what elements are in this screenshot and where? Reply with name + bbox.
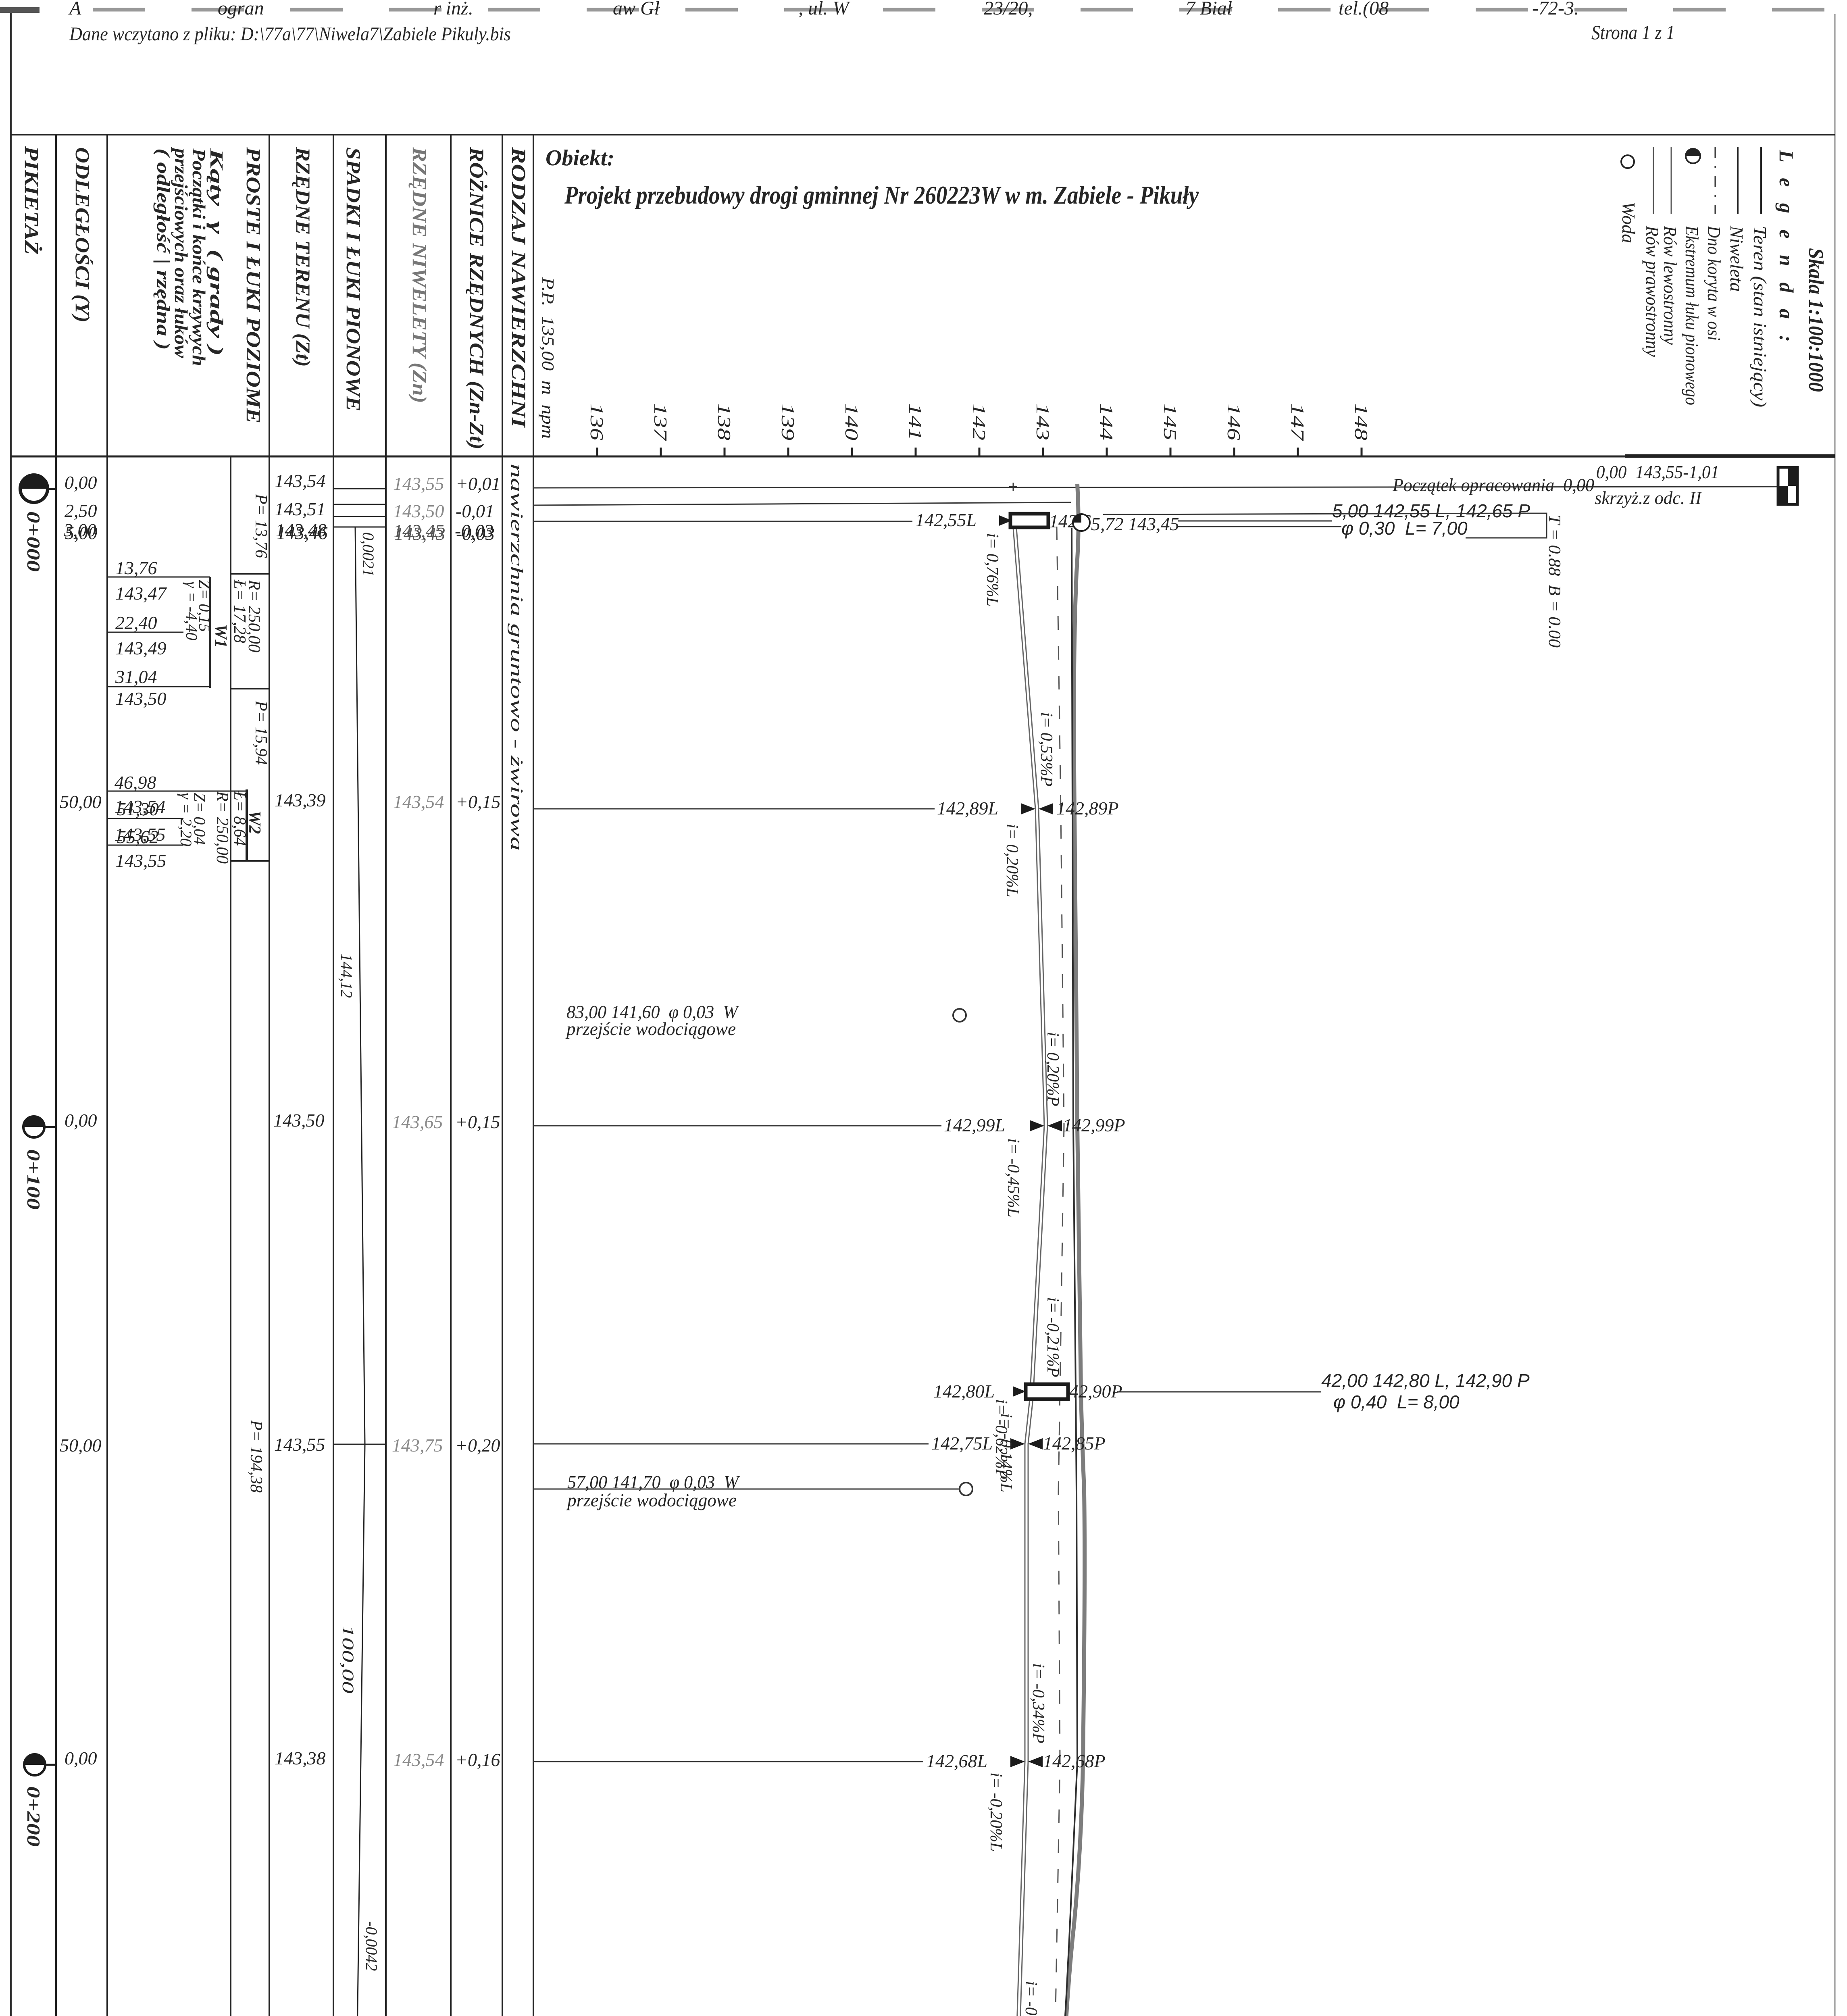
- svg-text:142,99P: 142,99P: [1063, 1115, 1125, 1135]
- svg-text:0,00: 0,00: [65, 1110, 97, 1131]
- svg-text:L e g e n d a :: L e g e n d a :: [1775, 150, 1798, 348]
- svg-text:-0,01: -0,01: [456, 501, 494, 521]
- svg-text:143,49: 143,49: [115, 638, 167, 658]
- svg-text:42,90P: 42,90P: [1069, 1381, 1122, 1402]
- svg-text:55,62: 55,62: [117, 827, 159, 847]
- svg-text:przejście wodociągowe: przejście wodociągowe: [565, 1018, 736, 1039]
- svg-text:i= 0,20%P: i= 0,20%P: [1043, 1032, 1062, 1106]
- svg-text:Woda: Woda: [1618, 202, 1639, 243]
- svg-text:+0,15: +0,15: [455, 1112, 500, 1132]
- svg-text:+0,16: +0,16: [455, 1749, 500, 1770]
- svg-text:Strona 1 z 1: Strona 1 z 1: [1591, 21, 1675, 44]
- svg-text:Dane wczytano z pliku: D:\77a\: Dane wczytano z pliku: D:\77a\77\Niwela7…: [69, 23, 511, 45]
- svg-text:W2: W2: [245, 810, 264, 834]
- svg-text:i= 0,53%P: i= 0,53%P: [1037, 712, 1056, 787]
- svg-text:100,00: 100,00: [339, 1625, 357, 1693]
- svg-text:przejście wodociągowe: przejście wodociągowe: [566, 1490, 737, 1510]
- svg-text:46,98: 46,98: [115, 772, 156, 793]
- svg-text:138: 138: [714, 403, 735, 440]
- svg-text:142,55L: 142,55L: [915, 510, 977, 530]
- svg-text:i= -0,14%L: i= -0,14%L: [997, 1413, 1015, 1492]
- svg-text:i= -0,21%P: i= -0,21%P: [1043, 1297, 1062, 1377]
- svg-text:142: 142: [969, 403, 989, 440]
- svg-text:143,38: 143,38: [275, 1748, 326, 1768]
- svg-text:145: 145: [1160, 403, 1181, 440]
- svg-text:, ul. W: , ul. W: [798, 0, 850, 19]
- svg-text:142,89P: 142,89P: [1056, 798, 1119, 818]
- svg-text:Projekt przebudowy drogi gminn: Projekt przebudowy drogi gminnej Nr 2602…: [564, 181, 1199, 209]
- svg-text:i= 0,20%L: i= 0,20%L: [1003, 824, 1021, 897]
- svg-text:i= 0,76%L: i= 0,76%L: [983, 533, 1002, 606]
- svg-text:R= 250,00: R= 250,00: [245, 579, 263, 652]
- svg-text:skrzyż.z odc. II: skrzyż.z odc. II: [1595, 487, 1703, 508]
- svg-text:5,72 143,45: 5,72 143,45: [1091, 514, 1179, 534]
- svg-text:R= 250,00: R= 250,00: [213, 791, 231, 864]
- svg-text:147: 147: [1287, 403, 1308, 442]
- svg-text:143,39: 143,39: [275, 790, 326, 810]
- svg-text:0+200: 0+200: [23, 1786, 44, 1847]
- svg-text:144: 144: [1096, 403, 1117, 440]
- svg-text:i= -0,34%P: i= -0,34%P: [1029, 1663, 1047, 1743]
- svg-text:RZĘDNE TERENU (Zt): RZĘDNE TERENU (Zt): [292, 147, 314, 367]
- svg-text:142,80L: 142,80L: [933, 1381, 995, 1402]
- svg-text:137: 137: [650, 403, 671, 442]
- svg-text:ODLEGŁOŚCI (Y): ODLEGŁOŚCI (Y): [71, 147, 94, 323]
- svg-text:2,50: 2,50: [65, 500, 97, 521]
- svg-text:( odległość | rzędna ): ( odległość | rzędna ): [153, 148, 174, 350]
- svg-text:Dno koryta w osi: Dno koryta w osi: [1704, 225, 1724, 341]
- svg-text:13,76: 13,76: [115, 558, 157, 578]
- svg-text:RÓŻNICE RZĘDNYCH (Zn-Zt): RÓŻNICE RZĘDNYCH (Zn-Zt): [466, 147, 488, 450]
- svg-text:139: 139: [778, 403, 798, 440]
- svg-text:r inż.: r inż.: [433, 0, 473, 19]
- svg-text:143,55: 143,55: [393, 473, 444, 494]
- svg-text:Rów prawostronny: Rów prawostronny: [1642, 225, 1663, 357]
- svg-text:7 Biał: 7 Biał: [1185, 0, 1233, 19]
- svg-text:PIKIETAŻ: PIKIETAŻ: [21, 146, 43, 255]
- svg-text:5,00: 5,00: [65, 523, 98, 543]
- svg-text:Niweleta: Niweleta: [1726, 225, 1747, 292]
- svg-text:143,54: 143,54: [393, 1749, 444, 1770]
- svg-text:aw Gł: aw Gł: [613, 0, 660, 19]
- svg-text:Teren (stan istniejący): Teren (stan istniejący): [1750, 226, 1770, 407]
- svg-text:0,0021: 0,0021: [359, 532, 377, 577]
- svg-text:PROSTE I ŁUKI POZIOME: PROSTE I ŁUKI POZIOME: [242, 147, 265, 423]
- svg-text:+0,15: +0,15: [456, 791, 501, 812]
- svg-text:Ekstremum łuku pionowego: Ekstremum łuku pionowego: [1682, 225, 1702, 405]
- svg-text:φ 0,30 L= 7,00: φ 0,30 L= 7,00: [1341, 518, 1468, 539]
- svg-text:142,75L: 142,75L: [931, 1433, 993, 1454]
- svg-text:140: 140: [841, 403, 862, 440]
- svg-text:142,68P: 142,68P: [1043, 1751, 1106, 1771]
- svg-text:31,04: 31,04: [115, 666, 157, 687]
- svg-text:φ 0,40 L= 8,00: φ 0,40 L= 8,00: [1333, 1391, 1460, 1412]
- svg-text:143: 143: [1033, 403, 1053, 440]
- svg-text:143,46: 143,46: [277, 523, 328, 543]
- svg-text:ogran: ogran: [218, 0, 264, 19]
- svg-text:RODZAJ NAWIERZCHNI: RODZAJ NAWIERZCHNI: [508, 147, 530, 428]
- svg-text:0,00: 0,00: [65, 1748, 97, 1768]
- svg-text:23/20,: 23/20,: [984, 0, 1033, 19]
- svg-text:0,00: 0,00: [65, 472, 97, 493]
- svg-text:+0,01: +0,01: [456, 473, 501, 494]
- svg-text:RZĘDNE NIWELETY (Zn): RZĘDNE NIWELETY (Zn): [408, 147, 431, 403]
- svg-text:i= -0,20%P: i= -0,20%P: [1022, 1981, 1040, 2016]
- svg-text:0,00 143,55-1,01: 0,00 143,55-1,01: [1596, 462, 1719, 482]
- svg-text:142,99L: 142,99L: [944, 1115, 1005, 1135]
- svg-text:P= 15,94: P= 15,94: [252, 700, 270, 765]
- svg-text:141: 141: [905, 403, 926, 440]
- svg-text:SPADKI I ŁUKI PIONOWE: SPADKI I ŁUKI PIONOWE: [342, 147, 365, 411]
- svg-text:0+100: 0+100: [23, 1149, 44, 1210]
- svg-text:143,47: 143,47: [115, 583, 167, 604]
- svg-text:136: 136: [587, 403, 607, 440]
- svg-text:nawierzchnia gruntowo - żwirow: nawierzchnia gruntowo - żwirowa: [507, 464, 526, 851]
- svg-text:42,00 142,80 L, 142,90 P: 42,00 142,80 L, 142,90 P: [1321, 1370, 1530, 1391]
- svg-text:Początek opracowania 0,00: Początek opracowania 0,00: [1392, 475, 1594, 495]
- svg-text:143,50: 143,50: [115, 688, 167, 709]
- svg-text:-0,0042: -0,0042: [362, 1921, 381, 1971]
- svg-text:143,51: 143,51: [275, 499, 326, 519]
- svg-text:142,68L: 142,68L: [926, 1751, 987, 1771]
- svg-text:Z= 0,15: Z= 0,15: [196, 580, 214, 632]
- svg-text:i= -0,45%L: i= -0,45%L: [1004, 1138, 1022, 1217]
- svg-text:Z= 0,04: Z= 0,04: [191, 793, 209, 845]
- svg-text:P= 13,76: P= 13,76: [252, 494, 270, 558]
- svg-text:50,00: 50,00: [60, 791, 102, 812]
- svg-text:tel.(08: tel.(08: [1339, 0, 1389, 19]
- svg-text:143,43: 143,43: [394, 523, 446, 544]
- svg-text:+0,20: +0,20: [455, 1435, 500, 1456]
- svg-text:P.P. 135,00 m npm: P.P. 135,00 m npm: [538, 277, 557, 439]
- svg-text:A: A: [68, 0, 81, 19]
- svg-text:143,55: 143,55: [274, 1434, 325, 1455]
- svg-text:144,12: 144,12: [337, 954, 356, 998]
- svg-text:143,50: 143,50: [393, 501, 444, 521]
- svg-text:143,75: 143,75: [392, 1435, 443, 1456]
- svg-text:143,54: 143,54: [393, 791, 444, 812]
- svg-text:T = 0.88 B = 0.00: T = 0.88 B = 0.00: [1545, 514, 1564, 648]
- svg-text:143,55: 143,55: [115, 850, 167, 871]
- svg-text:Obiekt:: Obiekt:: [546, 146, 614, 171]
- svg-text:143,54: 143,54: [275, 471, 326, 491]
- svg-text:142,85P: 142,85P: [1043, 1433, 1106, 1454]
- svg-text:i= -0,20%L: i= -0,20%L: [987, 1772, 1005, 1851]
- svg-text:143,65: 143,65: [392, 1112, 443, 1132]
- svg-text:51,30: 51,30: [117, 799, 159, 819]
- svg-text:-0,03: -0,03: [456, 523, 495, 544]
- svg-text:146: 146: [1224, 403, 1244, 440]
- svg-text:0+000: 0+000: [23, 511, 44, 572]
- svg-text:50,00: 50,00: [60, 1435, 102, 1456]
- svg-text:W1: W1: [211, 624, 230, 648]
- svg-text:22,40: 22,40: [115, 612, 157, 633]
- svg-text:Skala 1:100:1000: Skala 1:100:1000: [1804, 248, 1827, 392]
- svg-text:-72-3.: -72-3.: [1532, 0, 1579, 19]
- svg-text:142,89L: 142,89L: [937, 798, 998, 818]
- svg-text:148: 148: [1351, 403, 1372, 440]
- svg-text:143,50: 143,50: [273, 1110, 325, 1131]
- svg-text:P= 194,38: P= 194,38: [247, 1420, 265, 1493]
